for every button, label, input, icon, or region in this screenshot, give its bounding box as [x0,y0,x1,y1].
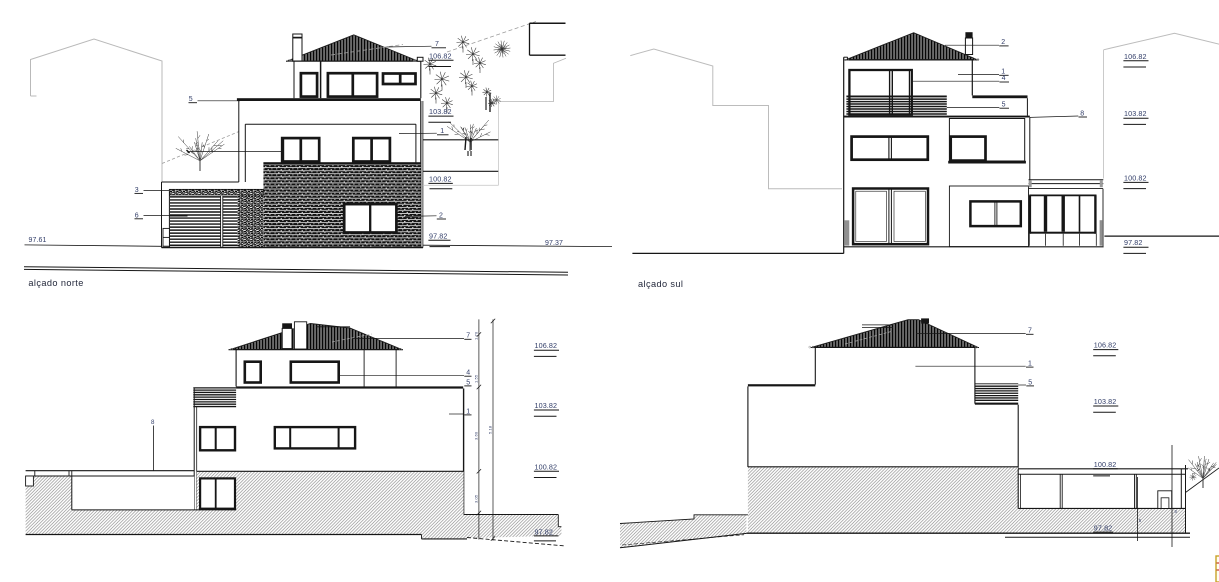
svg-text:2: 2 [1001,39,1005,46]
svg-text:100.82: 100.82 [1124,173,1147,182]
svg-text:97.37: 97.37 [545,240,563,247]
svg-text:100.82: 100.82 [1094,460,1117,469]
svg-text:106.82: 106.82 [1124,52,1147,61]
svg-text:5: 5 [1002,101,1006,108]
svg-text:6: 6 [135,212,139,219]
svg-text:3.05: 3.05 [473,494,478,503]
svg-text:1.70: 1.70 [473,331,478,340]
svg-text:alçado norte: alçado norte [28,278,83,288]
svg-text:106.82: 106.82 [1094,341,1117,350]
svg-text:3: 3 [135,187,139,194]
svg-text:7: 7 [435,41,439,48]
svg-text:103.82: 103.82 [1094,397,1117,406]
svg-text:97.82: 97.82 [1124,238,1143,247]
svg-text:106.82: 106.82 [535,341,558,350]
svg-text:103.82: 103.82 [429,107,452,116]
svg-text:5: 5 [189,96,193,103]
svg-text:4: 4 [1002,75,1006,82]
svg-text:1: 1 [1028,361,1032,368]
svg-text:100.82: 100.82 [429,175,452,184]
svg-text:5: 5 [466,379,470,386]
svg-text:97.82: 97.82 [429,231,448,240]
svg-text:97.82: 97.82 [535,527,554,536]
svg-text:4: 4 [466,370,470,377]
svg-text:2: 2 [439,212,443,219]
svg-text:5: 5 [1028,379,1032,386]
svg-text:103.82: 103.82 [1124,109,1147,118]
svg-text:103.82: 103.82 [535,401,558,410]
svg-text:97.61: 97.61 [29,237,47,244]
svg-text:alçado sul: alçado sul [638,279,683,289]
svg-text:1: 1 [440,128,444,135]
svg-text:1.55: 1.55 [473,374,478,383]
svg-text:8: 8 [1080,110,1084,117]
svg-text:8: 8 [151,419,155,426]
svg-text:7: 7 [1028,328,1032,335]
svg-text:106.82: 106.82 [429,51,452,60]
svg-text:7: 7 [466,333,470,340]
svg-text:100.82: 100.82 [535,462,558,471]
svg-text:3.60: 3.60 [473,431,478,440]
svg-text:1: 1 [466,408,470,415]
svg-text:5.18: 5.18 [487,425,492,434]
svg-text:97.82: 97.82 [1094,524,1113,533]
